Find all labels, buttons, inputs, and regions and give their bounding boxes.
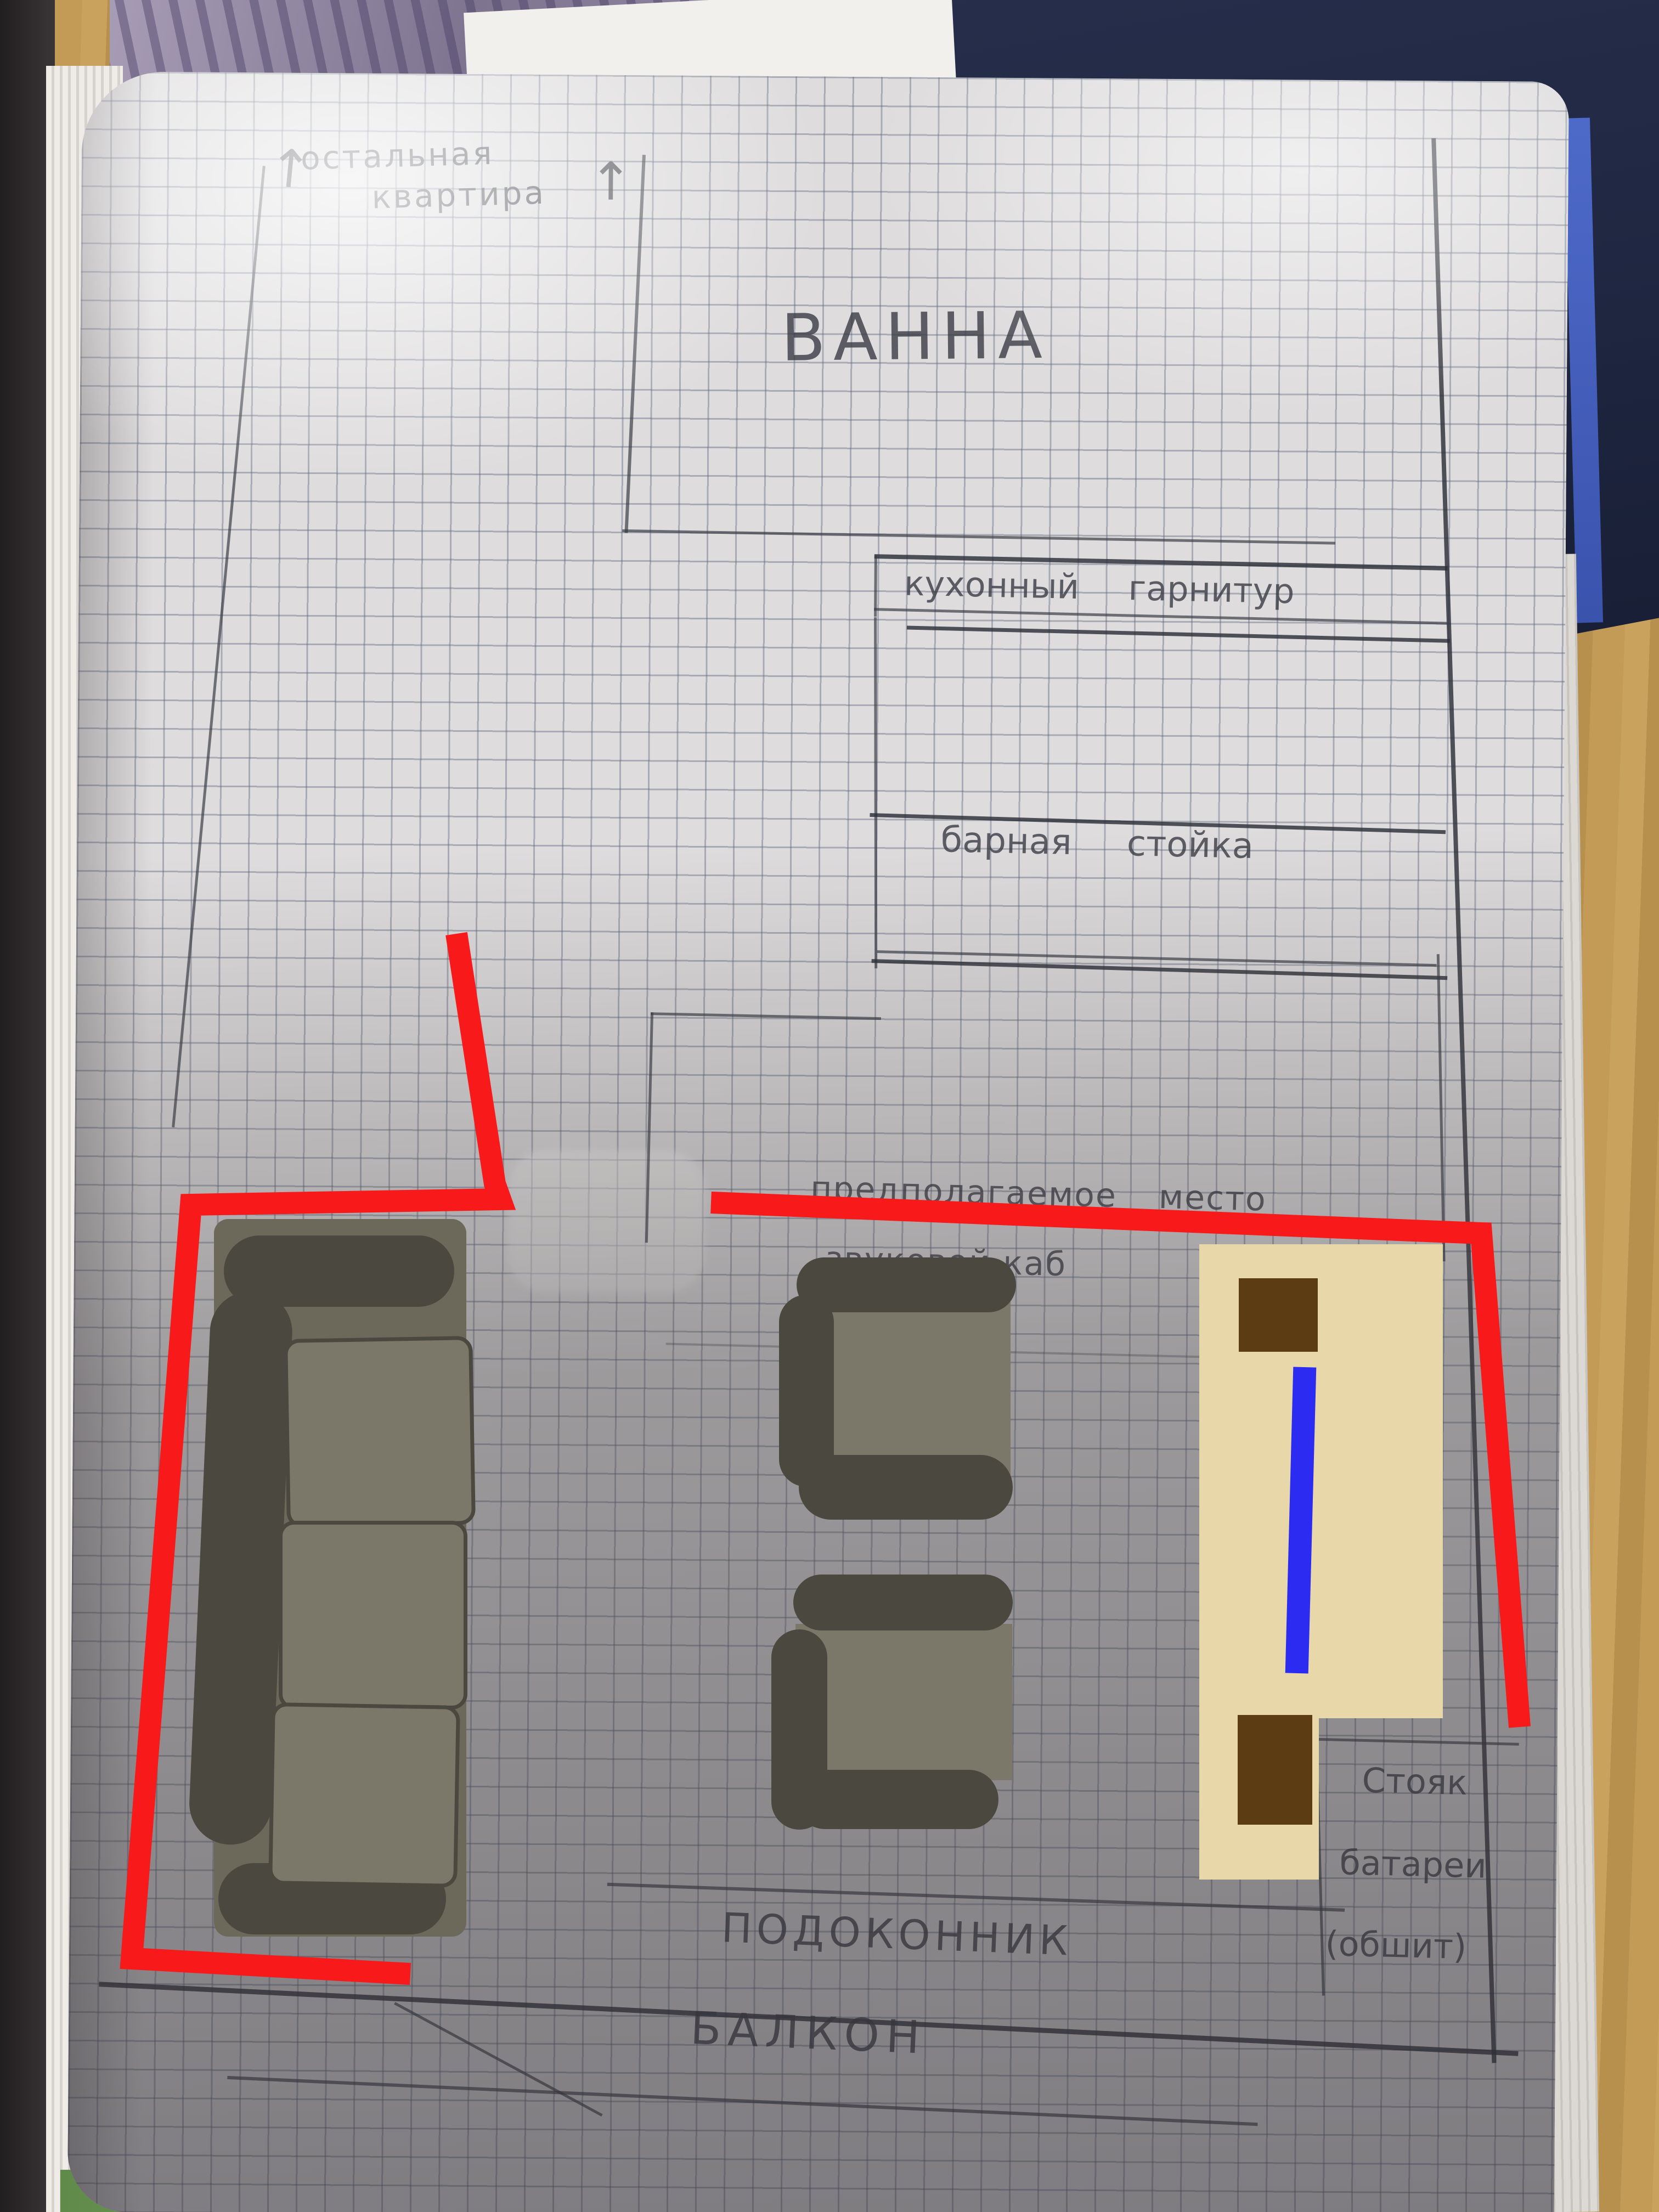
red-line-left-wall bbox=[132, 934, 500, 1974]
photo-of-notebook-floor-plan: ↑ остальная квартира ↑ ВАННА кухонный га… bbox=[0, 0, 1659, 2212]
digital-annotation-layer bbox=[0, 0, 1659, 2212]
red-line-right-wall bbox=[711, 1203, 1520, 1727]
red-annotation-lines bbox=[0, 0, 1659, 2212]
